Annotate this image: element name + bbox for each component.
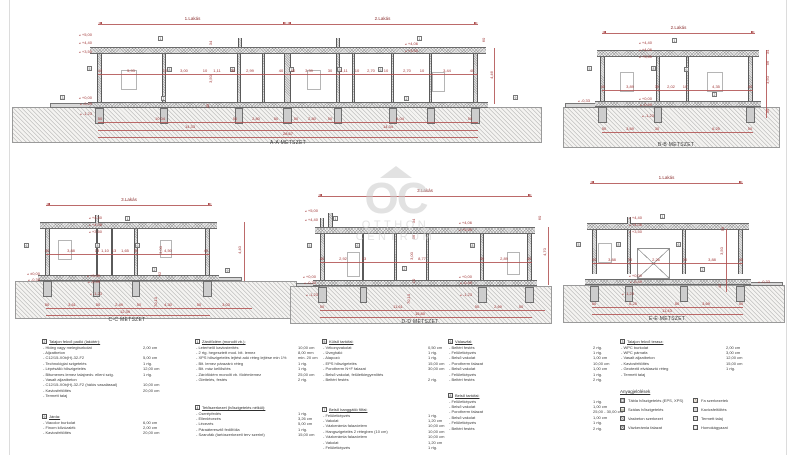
dim-label-rotated: 60 [482,38,486,42]
elevation-label: ±0,00 [27,272,40,276]
layer-marker-box: 2 [402,266,407,271]
dimension-line [592,314,743,315]
legend-item-label: - Termett talaj [621,373,645,377]
legend-item-value: 2 rtg. [593,378,602,382]
legend-item-label: - Páraáteresztő fedőfólia [196,428,240,432]
page-border-left [9,0,10,455]
footing [525,287,534,303]
dim-label-rotated: 62 [158,272,162,276]
material-label: Vázkerámia falazat [628,426,662,430]
wall [237,54,241,102]
legend-item-value: 8,00 mm [298,351,314,355]
legend-block-number: 2 [42,339,47,344]
legend-item-value: 1 rtg. [428,356,437,360]
dim-label: 3,61 [68,303,76,307]
dim-label: 2,26 [652,258,660,262]
dim-label-rotated: 34 [766,50,770,54]
section-title: A-A METSZET [270,141,306,146]
dim-label: 1,11 [213,69,221,73]
wall [656,57,660,101]
dimension-line [320,317,532,318]
legend-item-label: - Bitumenes lemez talajnedv. elleni szig… [43,373,114,377]
page-border-right [786,0,787,455]
dim-label: 40 [45,249,49,253]
elevation-label: -0,33 [577,99,590,103]
layer-marker-box: 6 [684,67,689,72]
wall [336,54,340,102]
footing [478,287,487,303]
dim-label: 30 [655,127,659,131]
concrete-slab [313,280,537,286]
concrete-slab [38,275,219,281]
span-label: 2.Lakás [671,26,687,31]
legend-block-title: Külső tartófal: [329,340,353,344]
legend-item-value: 10,00 cm [428,435,444,439]
dim-label: 6,25 [712,127,720,131]
legend-item-value: 2 rtg. [428,378,437,382]
legend-item-label: - Lécezés [196,422,213,426]
dim-label: 1,10 [101,249,109,253]
dim-label: 50 [475,305,479,309]
dim-label: 50 [294,117,298,121]
footing [746,107,755,123]
dim-label: 10 [203,69,207,73]
dim-label: 13 [112,249,116,253]
dimension-line [46,315,210,316]
legend-item-label: - Belső vakolat, felületkiegyenlítés [323,373,383,377]
dim-label: 28,67 [283,132,293,136]
legend-item-value: 1 rtg. [143,362,152,366]
legend-item-label: - Viacolor burkolat [43,421,75,425]
elevation-label: -0,49 [639,103,652,107]
legend-block-title: Járda: [49,415,60,419]
legend-item-label: - Porotherm falazat [449,410,483,414]
legend-item-value: 15,00 cm [298,433,314,437]
legend-item-value: 30,00 cm [428,367,444,371]
legend-item-label: - Bit. máz kellősítés [196,367,231,371]
legend-item-label: - Vázkerámia falazóelem [323,435,367,439]
window-opening [707,72,723,92]
legend-item-value: 1 rtg. [428,446,437,450]
window-opening [432,72,445,92]
window-opening [507,252,520,275]
wall [600,57,605,101]
elevation-label: -1,23 [641,114,654,118]
layer-marker-box: 6 [355,243,360,248]
dim-label: 2,69 [494,305,502,309]
dim-label: 50 [320,305,324,309]
legend-item-label: - Vasalt aljzatbeton [621,356,655,360]
dim-label: 2,02 [667,85,675,89]
span-label: 1.Lakás [185,17,201,22]
legend-item-label: - Hideg vagy melegburkolat [43,346,92,350]
dim-label: 50 [274,117,278,121]
elevation-label: +3,50 [88,230,102,234]
wall [262,54,265,102]
dim-label: 2,92 [339,257,347,261]
dim-label: 50 [592,302,596,306]
footing [43,281,52,297]
dim-label-rotated: 56 [412,235,416,239]
elevation-label: -1,23 [459,293,472,297]
layer-marker-box: 2 [161,96,166,101]
legend-block-number: 4 [195,405,200,410]
dimension-line [244,222,245,281]
section-title: B-B METSZET [658,143,694,148]
dim-label: 50 [328,117,332,121]
footing [590,286,599,302]
legend-item-value: 1 rtg. [428,351,437,355]
section-title: C-C METSZET [109,318,146,323]
footing [598,107,607,123]
dim-label: 3,89 [626,85,634,89]
legend-item-value: 1 rtg. [298,412,307,416]
legend-item-value: 2 rtg. [593,427,602,431]
wall [394,234,397,280]
dim-label: 8,77 [418,257,426,261]
dim-label: 40 [470,69,474,73]
dim-label: 30 [328,69,332,73]
footing [318,287,327,303]
material-swatch-sand [693,425,698,430]
dim-label: 50 [137,303,141,307]
layer-marker-box: 9 [225,268,230,273]
dim-label-rotated: 56 [721,227,725,231]
legend-item-value: 1,00 cm [593,367,607,371]
material-swatch-board [620,398,625,403]
dim-label: 40 [291,69,295,73]
layer-marker-box: 6 [24,243,29,248]
legend-item-value: 12,00 cm [726,356,742,360]
legend-item-label: - Vázkerámia falazóelem [323,424,367,428]
window-opening [347,252,360,277]
elevation-label: +4,40 [638,41,652,45]
arrowhead-right [751,31,755,33]
legend-item-label: - Felületképzés [449,373,476,377]
legend-item-label: - Aljzatbeton [43,351,65,355]
legend-item-value: 1,20 cm [428,419,442,423]
wall [97,54,102,102]
dim-label: 15,80 [415,312,425,316]
dim-label-rotated: 4,40 [238,246,242,254]
legend-item-label: - Vakolat [323,441,339,445]
span-dimension-line [46,205,212,206]
material-label: Termett talaj [701,417,723,421]
elevation-label: -1,23 [305,293,318,297]
dim-label: 40 [739,258,743,262]
elevation-label: -0,49 [79,102,92,106]
dim-label: 50 [197,303,201,307]
wall [352,54,355,102]
layer-marker-box: 9 [513,95,518,100]
legend-block-number: 8 [448,393,453,398]
layer-marker-box: 1 [333,216,338,221]
elevation-label: +0,00 [86,274,100,278]
wall [284,54,291,102]
dim-label: 50 [748,127,752,131]
dim-label: 50 [98,117,102,121]
legend-item-value: 10,00 cm [143,383,159,387]
legend-item-value: 1 rtg. [726,367,735,371]
layer-marker-box: 2 [700,267,705,272]
legend-item-value: 1 rtg. [593,351,602,355]
legend-item-value: 5,00 cm [143,356,157,360]
section-title: E-E METSZET [649,317,685,322]
legend-item-value: 1 rtg. [593,400,602,404]
dim-label: 40 [204,249,208,253]
legend-item-value: 1,00 cm [593,405,607,409]
legend-item-label: - Cserépfedés [196,412,221,416]
legend-item-value: 3,00 cm [726,351,740,355]
footing [360,287,367,303]
legend-item-label: - WPC párnafa [621,351,647,355]
span-dimension-line [287,24,478,25]
wall [162,54,166,102]
footing [132,281,140,297]
legend-item-value: 1,00 cm [593,416,607,420]
legend-item-label: - Zárófödém monolit vb. födémlemez [196,373,261,377]
dim-label: 2,80 [308,117,316,121]
dim-label-rotated: 3,50 [209,75,213,83]
legend-item-value: 10,00 cm [428,424,444,428]
dim-label-rotated: 3,50 [766,76,770,84]
wall [592,230,597,274]
dim-label: 10 [355,69,359,73]
legend-item-value: 0,50 cm [428,346,442,350]
legend-item-label: - Technológiai szigetelés [43,362,87,366]
legend-item-value: 1 rtg. [298,367,307,371]
dim-label: 50 [675,302,679,306]
dim-label: 50 [233,117,237,121]
legend-block-title: Belső tartófal: [455,394,479,398]
legend-item-label: - XPS hőszigetelés lejtést adó réteg lej… [196,356,287,360]
dimension-line [98,137,478,138]
legend-item-label: - Termett talaj [43,394,67,398]
arrowhead-left [287,22,291,24]
arrowhead-right [474,22,478,24]
layer-marker-box: 1 [125,216,130,221]
elevation-label: -1,23 [621,292,634,296]
wall [748,57,753,101]
concrete-slab [595,101,761,107]
blueprint-page: OC OTTHON CENTRUM 1.Lakás2.Lakás15862378… [0,0,800,455]
material-label: Vasbeton szerkezet [628,417,663,421]
dim-label: 14,34 [383,125,393,129]
watermark-roof-icon [380,166,412,178]
legend-item-value: 2 rtg. [593,346,602,350]
arrowhead-right [528,194,532,196]
legend-item-label: - WPC burkolat [621,346,648,350]
dim-label: 2,70 [403,69,411,73]
legend-item-label: - Porotherm N+F falazat [323,367,366,371]
elevation-label: -0,33 [303,281,316,285]
dim-label: 14,33 [185,125,195,129]
watermark-letters: OC [338,179,453,219]
elevation-label: -1,23 [89,292,102,296]
dim-label-rotated: 70,10 [407,294,411,304]
span-dimension-line [590,183,743,184]
elevation-label: +4,06 [638,48,652,52]
elevation-label: -0,49 [629,280,642,284]
legend-item-label: - Leterhelő kavicsterítés [196,346,238,350]
dim-label: 10 [163,69,167,73]
legend-item-value: 2,00 cm [726,346,740,350]
dim-label-rotated: 34 [412,219,416,223]
dim-label: 50 [739,302,743,306]
elevation-label: +4,40 [78,41,92,45]
legend-item-value: 1,00 cm [593,356,607,360]
wall [682,230,686,274]
legend-item-value: 1,20 cm [428,441,442,445]
legend-block-number: 1 [195,339,200,344]
material-label: Fa szerkezetek [701,399,728,403]
dim-label: 3,39 [305,69,313,73]
arrowhead-right [208,203,212,205]
legend-item-label: - C12/15-X0b(H)-32-F2 [43,356,84,360]
elevation-label: -0,49 [87,280,100,284]
layer-marker-box: 5 [587,66,592,71]
elevation-label: +4,40 [88,216,102,220]
elevation-label: +4,06 [628,223,642,227]
elevation-label: -0,33 [757,280,770,284]
dim-label-rotated: 4,46 [490,71,494,79]
layer-marker-box: 1 [672,38,677,43]
legend-item-value: 25,00 cm [298,373,314,377]
legend-item-value: 1 rtg. [143,373,152,377]
material-swatch-soil [693,416,698,421]
window-opening [620,72,634,92]
dimension-line [726,229,727,292]
dim-label: 40 [320,257,324,261]
dim-label: 2,80 [252,117,260,121]
wall [473,54,478,102]
footing [736,286,745,302]
span-label: 3.Lakás [417,189,433,194]
dimension-line [98,122,478,123]
dim-label-rotated: 45 [206,104,210,108]
window-opening [121,70,137,90]
elevation-label: +0,00 [638,97,652,101]
dim-label: 30 [628,258,632,262]
layer-marker-box: 3 [60,95,65,100]
dim-label: 3,88 [608,258,616,262]
legend-item-value: 1 rtg. [593,373,602,377]
legend-item-value: 1 rtg. [298,362,307,366]
material-label: Tábla hőszigetelés (EPS, XPS) [628,399,683,403]
legend-item-value: 2,00 cm [143,346,157,350]
arrowhead-left [98,22,102,24]
layer-marker-box: 5 [87,66,92,71]
elevation-label: +5,00 [78,33,92,37]
dimension-line [548,227,549,285]
legend-item-label: - EPS hőszigetelés [323,362,357,366]
dim-label: 50 [519,305,523,309]
legend-item-value: 10,00 cm [593,362,609,366]
material-swatch-fiber [620,407,625,412]
elevation-label: +0,00 [302,275,316,279]
legend-item-label: - Hangszigetelés 2 rétegben (10 cm) [323,430,388,434]
dim-label: 30 [655,85,659,89]
legend-item-label: - Glettelés, festés [196,378,227,382]
dim-label-rotated: 60 [538,216,542,220]
legend-block-number: 3 [620,339,625,344]
elevation-label: -0,33 [27,278,40,282]
legend-item-label: - Felületképzés [323,414,350,418]
wall [686,57,689,101]
legend-item-value: 10,00 cm [428,430,444,434]
dim-label: 50 [602,127,606,131]
dim-label: 12,39 [120,310,130,314]
legend-item-value: 25,00 - 30,00 cm [593,410,623,414]
dimension-line [98,74,478,75]
layer-marker-box: 5 [307,243,312,248]
legend-item-label: - Kavicsfeltöltés [43,389,71,393]
dim-label: 13 [95,249,99,253]
legend-item-value: 15,00 cm [726,362,742,366]
dim-label: 10 [420,69,424,73]
dim-label: 10 [384,69,388,73]
elevation-label: +0,00 [458,275,472,279]
elevation-label: +4,06 [458,221,472,225]
legend-item-label: - Bit. lemez párazáró réteg [196,362,243,366]
legend-item-label: - Felületképzés [449,421,476,425]
dim-label: 10 [683,85,687,89]
material-label: Homokágyazat [701,426,728,430]
material-swatch-gravel [693,407,698,412]
legend-block-number: 9 [42,414,47,419]
legend-item-label: - Vakolat [323,419,339,423]
legend-item-label: - Beltéri festés [449,427,475,431]
layer-marker-box: 8 [470,243,475,248]
dim-label-rotated: 70,10 [154,297,158,307]
material-swatch-rc [620,416,625,421]
dim-label: 5,93 [127,69,135,73]
dim-label-rotated: 3,00 [410,252,414,260]
span-dimension-line [98,24,287,25]
materials-legend-title: Anyagjelölések [620,389,650,394]
dim-label: 50 [468,117,472,121]
dim-label: 4,35 [712,85,720,89]
dimension-line [287,130,478,131]
legend-item-label: - Kavicsfeltöltés [621,362,649,366]
footing [654,107,662,123]
dim-label: 2,49 [115,303,123,307]
legend-item-value: 1 rtg. [593,421,602,425]
dim-label: 2,70 [367,69,375,73]
arrowhead-left [46,203,50,205]
dim-label-rotated: 3,00 [159,246,163,254]
legend-item-label: - Beltéri festés [449,346,475,350]
dim-label: 40 [748,85,752,89]
arrowhead-right [739,181,743,183]
concrete-slab [90,47,486,54]
elevation-label: +4,40 [304,218,318,222]
legend-block-title: Tetőszerkezet (hőszigetelés nélkül): [202,406,265,410]
legend-item-label: - Ellenlécezés [196,417,221,421]
elevation-label: +4,06 [88,223,102,227]
dim-label: 40 [527,257,531,261]
dim-label: 30 [480,257,484,261]
legend-item-label: - Belső vakolat [449,356,475,360]
concrete-slab [597,50,759,57]
dim-label: 50 [45,303,49,307]
legend-item-label: - Belső vakolat [449,416,475,420]
wall [426,234,429,280]
material-label: Kavicsfeltöltés [701,408,727,412]
legend-item-value: 12,00 cm [143,367,159,371]
dim-label: 10,04 [155,117,165,121]
elevation-label: +4,40 [628,216,642,220]
